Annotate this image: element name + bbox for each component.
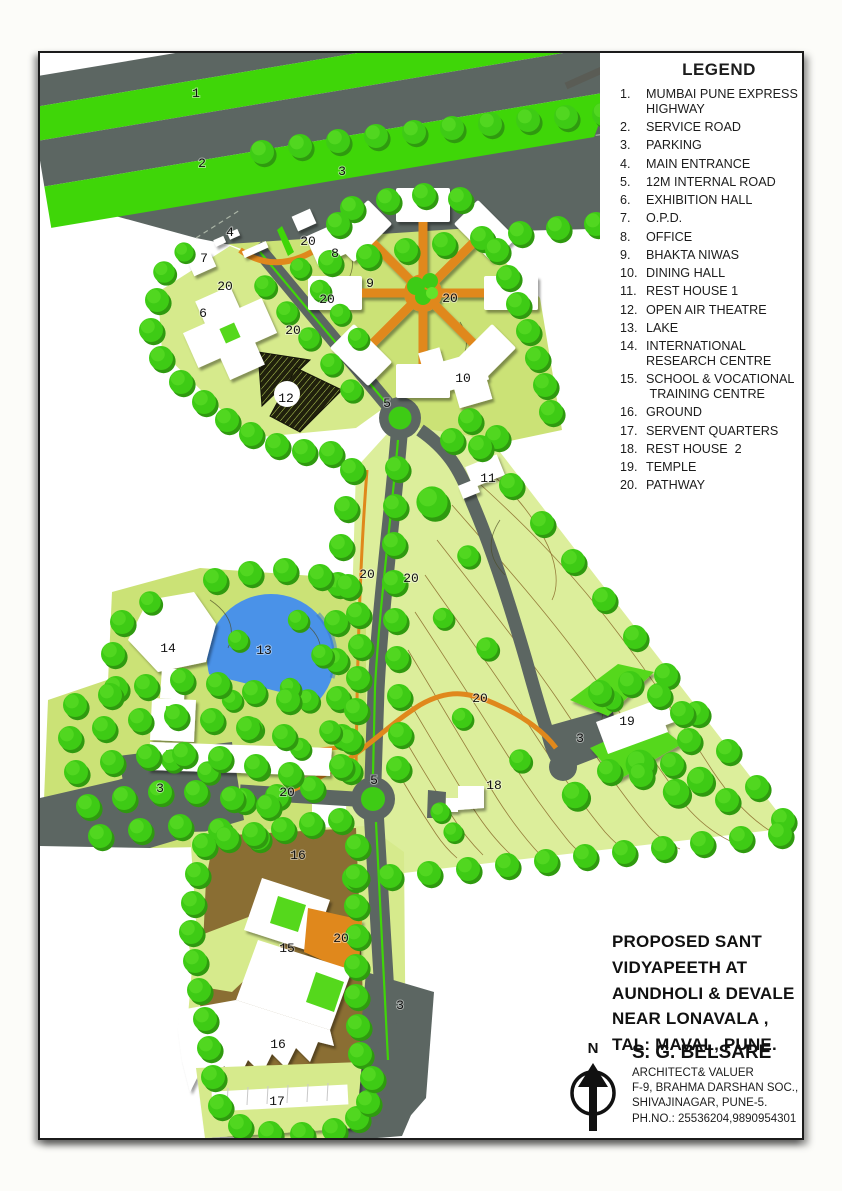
north-arrow-icon — [565, 1057, 621, 1133]
legend-item-number: 5. — [620, 175, 646, 190]
map-label-parking-4: 3 — [396, 998, 404, 1013]
legend-item-number: 14. — [620, 339, 646, 369]
legend-item: 6.EXHIBITION HALL — [620, 193, 818, 208]
legend-item: 10.DINING HALL — [620, 266, 818, 281]
map-label-parking-3: 3 — [576, 731, 584, 746]
map-label-parking-2: 3 — [156, 781, 164, 796]
legend-item: 8.OFFICE — [620, 230, 818, 245]
map-label-exhibition-hall: 6 — [199, 306, 207, 321]
legend-item-label: LAKE — [646, 321, 678, 336]
legend-item: 16.GROUND — [620, 405, 818, 420]
map-label-research-centre: 14 — [160, 641, 176, 656]
legend-item: 19.TEMPLE — [620, 460, 818, 475]
legend-item: 15.SCHOOL & VOCATIONAL TRAINING CENTRE — [620, 372, 818, 402]
map-label-pathway-7: 20 — [403, 571, 419, 586]
map-label-main-entrance: 4 — [226, 225, 234, 240]
architect-address-2: SHIVAJINAGAR, PUNE-5. — [632, 1096, 812, 1111]
legend-item-label: PATHWAY — [646, 478, 705, 493]
architect-phone: PH.NO.: 25536204,9890954301 — [632, 1112, 812, 1127]
legend-item-label: PARKING — [646, 138, 702, 153]
legend-item: 5.12M INTERNAL ROAD — [620, 175, 818, 190]
map-label-highway: 1 — [192, 86, 200, 101]
legend-item-label: SCHOOL & VOCATIONAL TRAINING CENTRE — [646, 372, 794, 402]
legend-item-label: GROUND — [646, 405, 702, 420]
legend-item-label: REST HOUSE 2 — [646, 442, 742, 457]
legend-item-number: 3. — [620, 138, 646, 153]
map-label-ground-2: 16 — [270, 1037, 286, 1052]
legend-item-number: 18. — [620, 442, 646, 457]
project-title: PROPOSED SANT VIDYAPEETH AT AUNDHOLI & D… — [612, 929, 817, 1058]
legend-item-label: REST HOUSE 1 — [646, 284, 738, 299]
legend-item-label: DINING HALL — [646, 266, 725, 281]
legend-item-number: 8. — [620, 230, 646, 245]
map-label-service-road: 2 — [198, 156, 206, 171]
map-label-bhakta-niwas: 9 — [366, 276, 374, 291]
legend-item-number: 16. — [620, 405, 646, 420]
tree-icon — [265, 433, 292, 460]
map-label-school: 15 — [279, 941, 295, 956]
legend-item-label: BHAKTA NIWAS — [646, 248, 739, 263]
legend-item-number: 9. — [620, 248, 646, 263]
legend-item: 17.SERVENT QUARTERS — [620, 424, 818, 439]
legend-item-number: 19. — [620, 460, 646, 475]
legend-item-number: 7. — [620, 211, 646, 226]
legend-item: 13.LAKE — [620, 321, 818, 336]
legend-item: 11.REST HOUSE 1 — [620, 284, 818, 299]
architect-block: N S. G. BELSARE ARCHITECT& VALUER F-9, B… — [564, 1040, 812, 1138]
architect-name: S. G. BELSARE — [632, 1042, 812, 1064]
legend: LEGEND 1.MUMBAI PUNE EXPRESS HIGHWAY 2.S… — [620, 60, 818, 497]
legend-item-number: 2. — [620, 120, 646, 135]
legend-item-label: O.P.D. — [646, 211, 682, 226]
legend-item-label: INTERNATIONAL RESEARCH CENTRE — [646, 339, 771, 369]
map-label-office: 8 — [331, 246, 339, 261]
legend-item-label: OFFICE — [646, 230, 692, 245]
map-label-parking-1: 3 — [338, 164, 346, 179]
map-label-internal-road-1: 5 — [383, 396, 391, 411]
map-label-ground-1: 16 — [290, 848, 306, 863]
legend-item-number: 6. — [620, 193, 646, 208]
tree-icon — [153, 261, 177, 285]
tree-icon — [174, 242, 195, 264]
legend-item-number: 20. — [620, 478, 646, 493]
map-label-lake: 13 — [256, 643, 272, 658]
map-label-temple: 19 — [619, 714, 635, 729]
map-label-pathway-10: 20 — [333, 931, 349, 946]
legend-item-label: OPEN AIR THEATRE — [646, 303, 767, 318]
legend-item-number: 10. — [620, 266, 646, 281]
legend-item: 1.MUMBAI PUNE EXPRESS HIGHWAY — [620, 87, 818, 117]
legend-item-number: 17. — [620, 424, 646, 439]
tree-icon — [329, 534, 356, 561]
map-label-rest-house-2: 18 — [486, 778, 502, 793]
map-label-pathway-9: 20 — [472, 691, 488, 706]
legend-item: 3.PARKING — [620, 138, 818, 153]
map-label-pathway-1: 20 — [300, 234, 316, 249]
architect-address-1: F-9, BRAHMA DARSHAN SOC., — [632, 1081, 812, 1096]
map-label-pathway-6: 20 — [359, 567, 375, 582]
map-label-internal-road-2: 5 — [370, 773, 378, 788]
legend-item-label: MAIN ENTRANCE — [646, 157, 750, 172]
map-label-pathway-5: 20 — [442, 291, 458, 306]
legend-item: 20.PATHWAY — [620, 478, 818, 493]
legend-item-label: SERVICE ROAD — [646, 120, 741, 135]
legend-item-number: 11. — [620, 284, 646, 299]
legend-item-label: MUMBAI PUNE EXPRESS HIGHWAY — [646, 87, 798, 117]
tree-icon — [292, 439, 319, 466]
map-label-servent-quarters: 17 — [269, 1094, 285, 1109]
legend-item-number: 4. — [620, 157, 646, 172]
map-label-dining-hall: 10 — [455, 371, 471, 386]
map-label-rest-house-1: 11 — [480, 471, 496, 486]
legend-item: 18.REST HOUSE 2 — [620, 442, 818, 457]
legend-item: 12.OPEN AIR THEATRE — [620, 303, 818, 318]
legend-item: 2.SERVICE ROAD — [620, 120, 818, 135]
legend-item: 9.BHAKTA NIWAS — [620, 248, 818, 263]
north-label: N — [564, 1040, 622, 1057]
map-label-open-air-theatre: 12 — [278, 391, 294, 406]
legend-item-number: 12. — [620, 303, 646, 318]
map-label-opd: 7 — [200, 251, 208, 266]
map-label-pathway-4: 20 — [285, 323, 301, 338]
map-label-pathway-8: 20 — [279, 785, 295, 800]
legend-item-number: 13. — [620, 321, 646, 336]
legend-item: 7.O.P.D. — [620, 211, 818, 226]
architect-title: ARCHITECT& VALUER — [632, 1066, 812, 1081]
legend-item-number: 15. — [620, 372, 646, 402]
map-label-pathway-3: 20 — [319, 292, 335, 307]
legend-item-number: 1. — [620, 87, 646, 117]
legend-item-label: EXHIBITION HALL — [646, 193, 752, 208]
legend-item: 4.MAIN ENTRANCE — [620, 157, 818, 172]
map-label-pathway-2: 20 — [217, 279, 233, 294]
legend-item-label: 12M INTERNAL ROAD — [646, 175, 776, 190]
legend-item: 14.INTERNATIONAL RESEARCH CENTRE — [620, 339, 818, 369]
north-arrow: N — [564, 1040, 622, 1138]
legend-item-label: TEMPLE — [646, 460, 696, 475]
legend-heading: LEGEND — [620, 60, 818, 80]
legend-item-label: SERVENT QUARTERS — [646, 424, 778, 439]
